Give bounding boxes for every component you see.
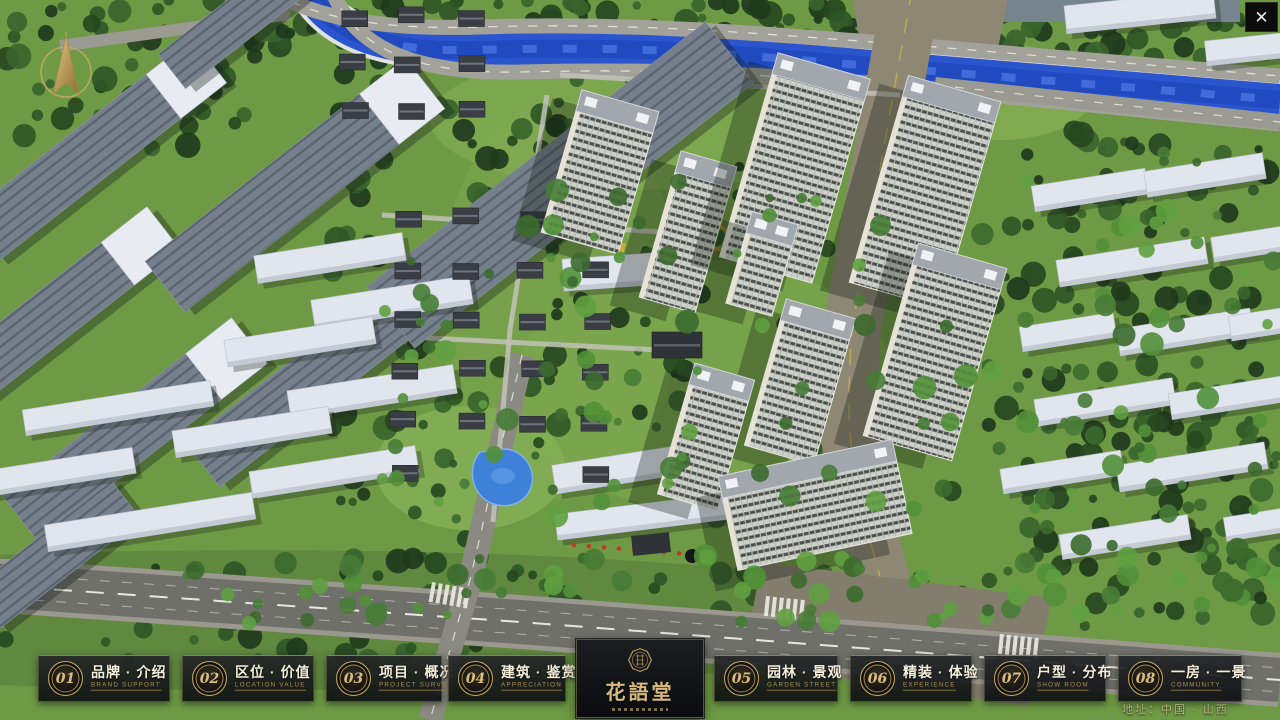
nav-item-08-view[interactable]: 08 一房 · 一景 COMMUNITY xyxy=(1118,655,1242,702)
nav-labels: 区位 · 价值 LOCATION VALUE xyxy=(235,665,326,693)
nav-number-badge: 03 xyxy=(336,661,371,696)
nav-item-04-architecture[interactable]: 04 建筑 · 鉴赏 APPRECIATION xyxy=(448,655,566,702)
presentation-stage: ✕ 01 品牌 · 介绍 BRAND SUPPORT 02 区位 · 价值 LO… xyxy=(0,0,1280,720)
nav-item-02-location[interactable]: 02 区位 · 价值 LOCATION VALUE xyxy=(182,655,314,702)
address-text: 地址：中国 · 山西 xyxy=(1122,701,1229,717)
nav-label-zh: 精装 · 体验 xyxy=(903,665,978,679)
nav-number-badge: 05 xyxy=(724,661,759,696)
nav-labels: 品牌 · 介绍 BRAND SUPPORT xyxy=(91,665,181,693)
aerial-site-render xyxy=(0,0,1280,720)
nav-item-01-brand[interactable]: 01 品牌 · 介绍 BRAND SUPPORT xyxy=(38,655,170,702)
nav-label-zh: 建筑 · 鉴赏 xyxy=(501,665,576,679)
nav-labels: 精装 · 体验 EXPERIENCE xyxy=(903,665,978,693)
project-logo-title: 花語堂 xyxy=(606,676,675,705)
nav-labels: 户型 · 分布 SHOW ROOM xyxy=(1037,665,1112,693)
nav-number-badge: 07 xyxy=(994,661,1029,696)
nav-number-badge: 01 xyxy=(48,661,83,696)
close-button[interactable]: ✕ xyxy=(1245,2,1278,32)
nav-number-badge: 04 xyxy=(458,661,493,696)
nav-label-en: GARDEN STREET xyxy=(767,682,836,691)
nav-item-07-floorplan[interactable]: 07 户型 · 分布 SHOW ROOM xyxy=(984,655,1106,702)
nav-number-badge: 08 xyxy=(1128,661,1163,696)
logo-caption xyxy=(612,708,668,711)
nav-item-05-landscape[interactable]: 05 园林 · 景观 GARDEN STREET xyxy=(714,655,838,702)
nav-label-en: PROJECT SURVEY xyxy=(379,682,453,691)
nav-label-en: COMMUNITY xyxy=(1171,682,1221,691)
nav-label-zh: 一房 · 一景 xyxy=(1171,665,1246,679)
nav-label-en: BRAND SUPPORT xyxy=(91,682,161,691)
project-logo-panel[interactable]: 花語堂 xyxy=(576,639,704,718)
logo-seal-icon xyxy=(627,647,653,673)
nav-labels: 建筑 · 鉴赏 APPRECIATION xyxy=(501,665,579,693)
nav-item-06-interior[interactable]: 06 精装 · 体验 EXPERIENCE xyxy=(850,655,972,702)
nav-label-en: LOCATION VALUE xyxy=(235,682,306,691)
compass-north-icon xyxy=(34,26,98,112)
nav-number-badge: 06 xyxy=(860,661,895,696)
nav-label-zh: 品牌 · 介绍 xyxy=(91,665,166,679)
nav-labels: 园林 · 景观 GARDEN STREET xyxy=(767,665,856,693)
nav-label-en: SHOW ROOM xyxy=(1037,682,1089,691)
nav-label-zh: 户型 · 分布 xyxy=(1037,665,1112,679)
nav-item-03-project[interactable]: 03 项目 · 概况 PROJECT SURVEY xyxy=(326,655,442,702)
nav-label-zh: 园林 · 景观 xyxy=(767,665,842,679)
nav-label-en: EXPERIENCE xyxy=(903,682,956,691)
nav-label-en: APPRECIATION xyxy=(501,682,562,691)
nav-label-zh: 区位 · 价值 xyxy=(235,665,310,679)
nav-number-badge: 02 xyxy=(192,661,227,696)
nav-labels: 一房 · 一景 COMMUNITY xyxy=(1171,665,1246,693)
nav-label-zh: 项目 · 概况 xyxy=(379,665,454,679)
